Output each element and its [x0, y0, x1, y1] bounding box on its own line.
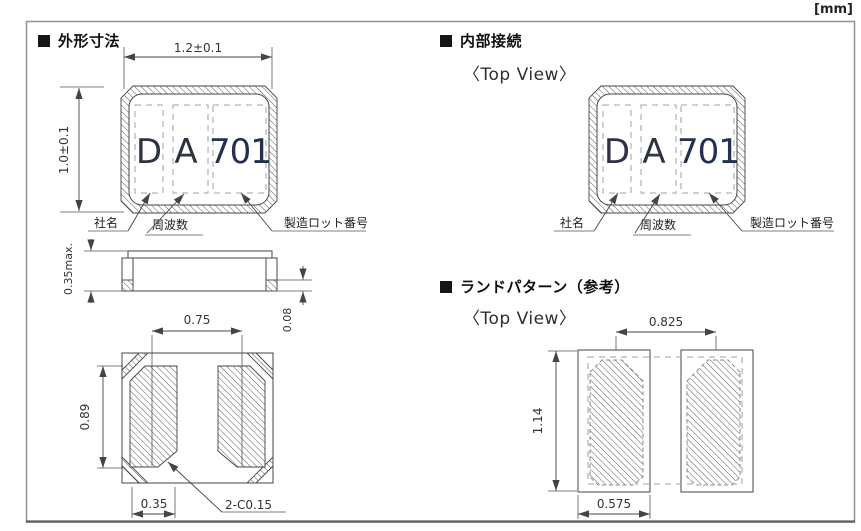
- chip-package-drawing: D A 701: [121, 86, 277, 213]
- dim-land-width: 0.575: [597, 497, 631, 511]
- side-view-lid: [128, 251, 272, 258]
- label-lot: 製造ロット番号: [284, 216, 368, 230]
- internal-top-view: D A 701 社名 周波数 製造ロット番号: [554, 86, 834, 235]
- dim-body-width: 1.2±0.1: [174, 41, 222, 55]
- marking-lot-code: 701: [677, 132, 739, 172]
- dim-body-thickness: 0.35max.: [62, 243, 75, 295]
- marking-company-code: D: [136, 132, 162, 172]
- chip-package-drawing: D A 701: [589, 86, 745, 213]
- dim-land-pitch: 0.825: [649, 315, 683, 329]
- dim-electrode-thickness: 0.08: [281, 308, 294, 333]
- label-frequency: 周波数: [152, 217, 188, 232]
- label-lot: 製造ロット番号: [750, 216, 834, 230]
- outline-bottom-view: 0.89 0.35 2-C0.15: [78, 353, 286, 518]
- land-pattern-view: 0.825 1.14 0.575: [531, 315, 753, 519]
- side-view-electrode-right: [266, 280, 277, 291]
- marking-company-code: D: [604, 132, 630, 172]
- bottom-pad-left: [130, 366, 177, 467]
- land-pad-right: [687, 360, 740, 485]
- land-pad-left: [590, 360, 643, 485]
- side-view-body: [122, 258, 277, 291]
- dim-pad-width: 0.35: [141, 497, 168, 511]
- dim-pad-pitch: 0.75: [184, 313, 211, 327]
- bottom-pad-right: [218, 366, 265, 467]
- side-view-electrode-left: [122, 280, 133, 291]
- dim-land-length: 1.14: [531, 408, 545, 435]
- dim-body-height: 1.0±0.1: [57, 126, 71, 174]
- datasheet-page: [mm] 外形寸法 内部接続 〈Top View〉 ランドパターン（参考） 〈T…: [0, 0, 861, 531]
- outline-top-view: 1.2±0.1 1.0±0.1 D A 701 社名: [57, 41, 368, 235]
- marking-frequency-code: A: [174, 132, 197, 172]
- marking-frequency-code: A: [642, 132, 665, 172]
- dim-pad-chamfer: 2-C0.15: [225, 498, 272, 512]
- label-frequency: 周波数: [640, 217, 676, 232]
- label-company: 社名: [560, 215, 584, 230]
- dim-pad-length: 0.89: [78, 404, 92, 431]
- marking-lot-code: 701: [209, 132, 271, 172]
- label-company: 社名: [94, 215, 118, 230]
- technical-drawing: 1.2±0.1 1.0±0.1 D A 701 社名: [0, 0, 861, 531]
